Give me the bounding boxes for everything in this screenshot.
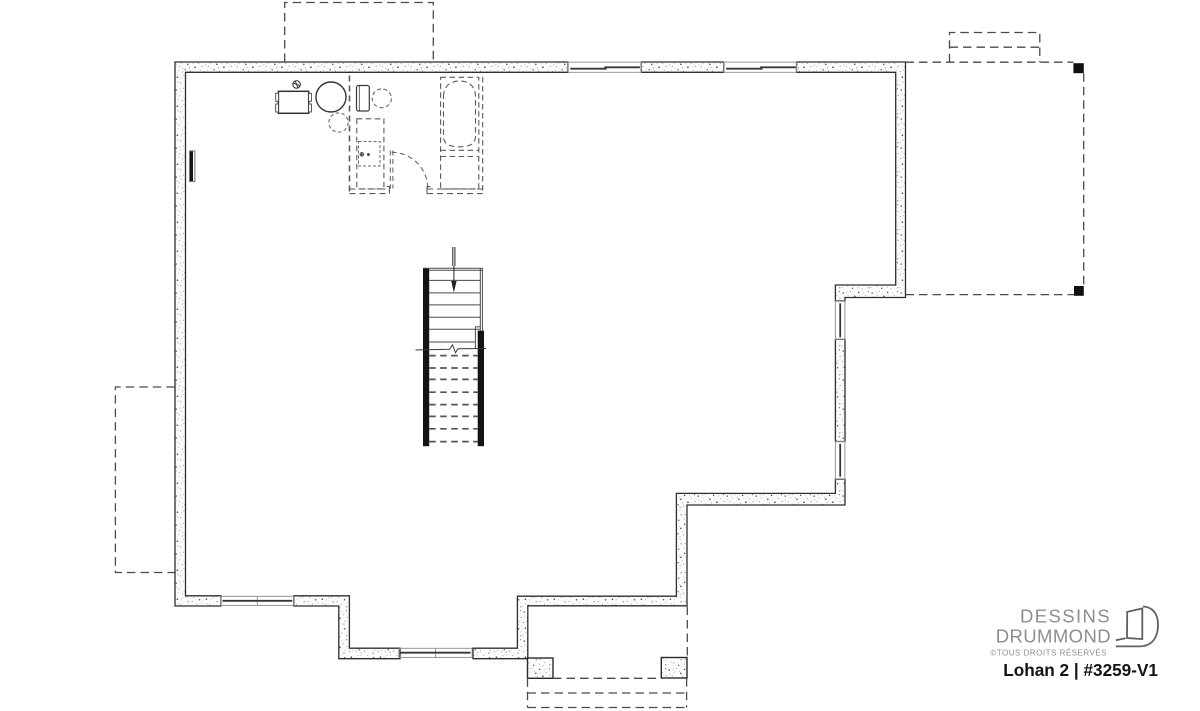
svg-text:Lohan 2 | #3259-V1: Lohan 2 | #3259-V1	[1003, 660, 1158, 680]
svg-text:DESSINS: DESSINS	[1020, 606, 1111, 627]
svg-text:©TOUS DROITS RÉSERVÉS: ©TOUS DROITS RÉSERVÉS	[990, 649, 1107, 658]
svg-text:DRUMMOND: DRUMMOND	[996, 626, 1111, 647]
